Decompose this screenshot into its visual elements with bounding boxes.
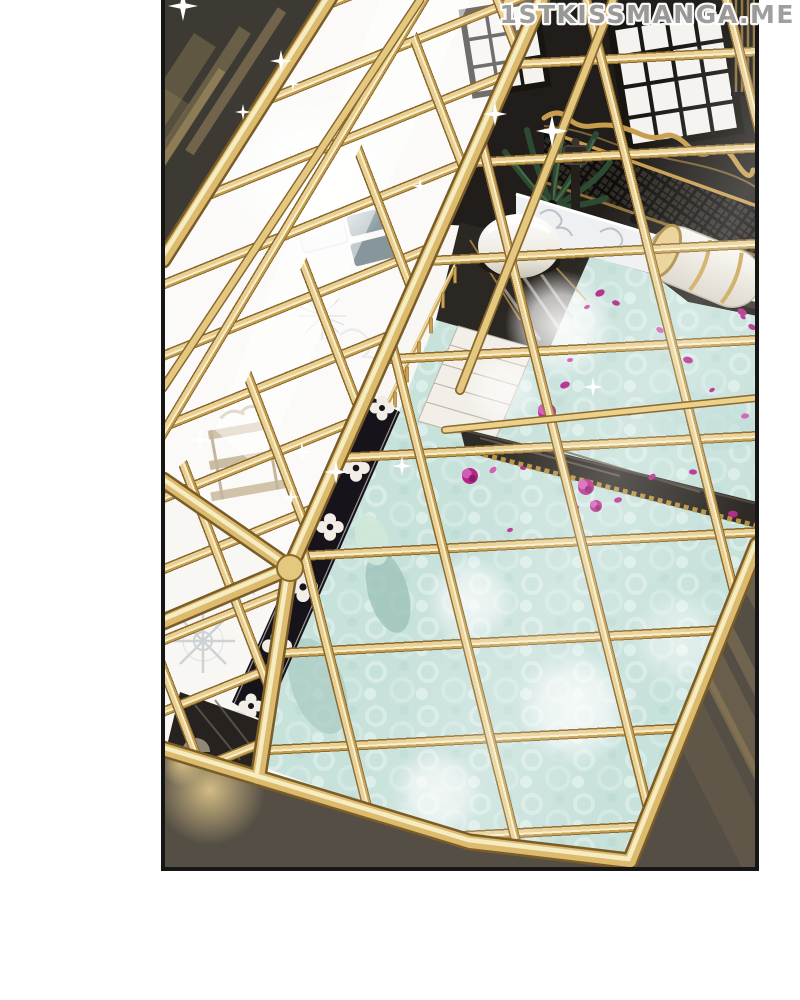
light-rays-topleft — [0, 7, 286, 364]
watermark-text: 1STKISSMANGA.ME — [500, 0, 795, 29]
structure-overlay: 1STKISSMANGA.ME — [0, 0, 800, 1000]
sparkle-glint — [283, 489, 299, 505]
sparkle-glint — [292, 442, 312, 462]
sparkle-glint — [583, 377, 603, 397]
sparkle-glint — [392, 456, 412, 476]
sparkle-glint — [412, 178, 428, 194]
outer-wall-topleft — [0, 0, 332, 364]
comic-panel-page: 1STKISSMANGA.ME — [0, 0, 800, 1000]
sparkle-glint — [188, 428, 212, 452]
beam-junction — [277, 555, 303, 581]
roof-beams — [162, 0, 758, 861]
outer-wall-bottom — [155, 548, 800, 876]
sparkle-glint — [286, 77, 300, 91]
